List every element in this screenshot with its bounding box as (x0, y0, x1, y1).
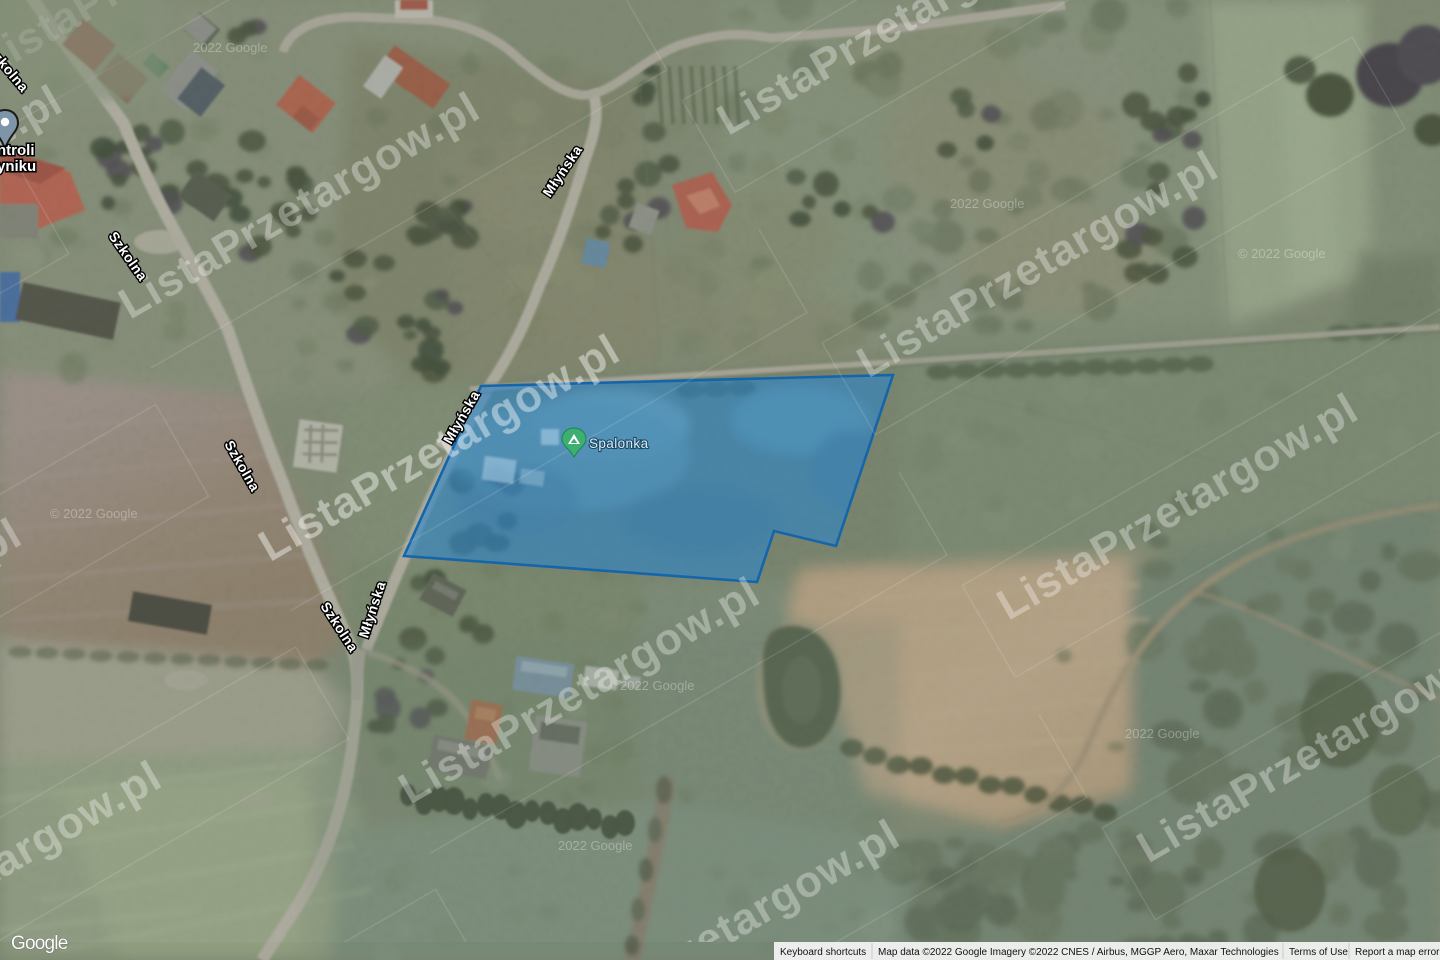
svg-text:Map data ©2022 Google Imagery: Map data ©2022 Google Imagery ©2022 CNES… (878, 947, 1279, 958)
svg-text:Keyboard shortcuts: Keyboard shortcuts (780, 947, 866, 958)
svg-text:2022 Google: 2022 Google (558, 838, 632, 853)
svg-text:2022 Google: 2022 Google (1125, 726, 1199, 741)
svg-text:2022 Google: 2022 Google (620, 678, 694, 693)
svg-text:© 2022 Google: © 2022 Google (1238, 246, 1326, 261)
svg-text:yniku: yniku (0, 158, 36, 175)
svg-text:© 2022 Google: © 2022 Google (50, 506, 138, 521)
svg-text:2022 Google: 2022 Google (193, 40, 267, 55)
svg-text:Google: Google (11, 933, 68, 954)
svg-text:2022 Google: 2022 Google (950, 196, 1024, 211)
svg-text:Terms of Use: Terms of Use (1289, 947, 1348, 958)
svg-text:Spalonka: Spalonka (589, 436, 649, 451)
svg-text:Report a map error: Report a map error (1355, 947, 1440, 958)
svg-text:ntroli: ntroli (0, 142, 35, 159)
